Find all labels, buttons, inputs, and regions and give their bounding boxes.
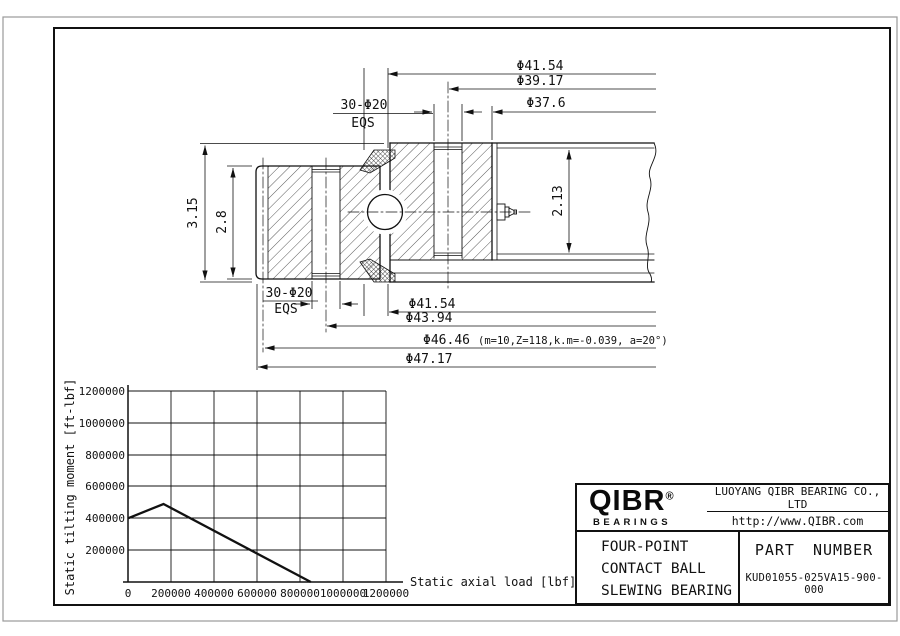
company-info: LUOYANG QIBR BEARING CO., LTD http://www… [707, 485, 888, 530]
y-tick: 200000 [85, 544, 125, 557]
title-block-detail-row: FOUR-POINT CONTACT BALL SLEWING BEARING … [577, 532, 888, 603]
x-axis-label: Static axial load [lbf] [410, 575, 576, 589]
company-website: http://www.QIBR.com [707, 512, 888, 530]
registered-trademark-icon: ® [666, 490, 675, 502]
bolt-callout-bottom: 30-Φ20 [266, 286, 313, 301]
inner-ring-section [390, 143, 654, 282]
dim-label-top-3: Φ37.6 [526, 96, 565, 111]
y-tick: 800000 [85, 449, 125, 462]
brand-subtext: BEARINGS [593, 517, 707, 528]
title-block: QIBR® BEARINGS LUOYANG QIBR BEARING CO.,… [575, 483, 890, 605]
dim-label-top-1: Φ41.54 [517, 59, 564, 74]
title-block-header-row: QIBR® BEARINGS LUOYANG QIBR BEARING CO.,… [577, 485, 888, 532]
qibr-logo: QIBR® BEARINGS [577, 485, 707, 530]
y-tick: 400000 [85, 512, 125, 525]
bolt-callout-top: 30-Φ20 [341, 98, 388, 113]
x-tick: 1200000 [363, 587, 409, 600]
break-line [646, 143, 656, 282]
product-type-line2: CONTACT BALL [601, 558, 738, 580]
x-tick: 800000 [280, 587, 320, 600]
dim-label-bot-1: Φ41.54 [409, 297, 456, 312]
dim-label-bot-3-note: (m=10,Z=118,k.m=-0.039, a=20°) [478, 335, 668, 347]
brand-wordmark: QIBR® [589, 487, 707, 516]
y-tick-labels: 1200000 1000000 800000 600000 400000 200… [79, 385, 125, 557]
dim-label-height-outer: 3.15 [186, 197, 201, 228]
x-tick: 400000 [194, 587, 234, 600]
part-number-label: PART NUMBER [740, 541, 888, 559]
x-tick-labels: 0 200000 400000 600000 800000 1000000 12… [125, 587, 409, 600]
dim-label-bot-4: Φ47.17 [406, 352, 453, 367]
company-name: LUOYANG QIBR BEARING CO., LTD [707, 485, 888, 512]
x-tick: 600000 [237, 587, 277, 600]
brand-text: QIBR [589, 485, 666, 517]
part-number-value: KUD01055-025VA15-900-000 [740, 572, 888, 596]
drawing-sheet: Φ41.54 Φ39.17 Φ37.6 30-Φ20 EQS 3.15 2.8 … [0, 0, 900, 636]
dim-label-top-2: Φ39.17 [517, 74, 564, 89]
y-axis-label: Static tilting moment [ft-lbf] [63, 379, 77, 596]
chart-line [128, 504, 311, 582]
y-tick: 1200000 [79, 385, 125, 398]
product-type: FOUR-POINT CONTACT BALL SLEWING BEARING [577, 532, 740, 603]
part-number-cell: PART NUMBER KUD01055-025VA15-900-000 [740, 532, 888, 603]
dim-label-bot-3: Φ46.46 [423, 333, 470, 348]
y-tick: 600000 [85, 480, 125, 493]
load-capacity-chart: 1200000 1000000 800000 600000 400000 200… [63, 379, 576, 600]
dim-label-bot-2: Φ43.94 [406, 311, 453, 326]
y-tick: 1000000 [79, 417, 125, 430]
bolt-callout-top-eqs: EQS [351, 116, 374, 131]
product-type-line3: SLEWING BEARING [601, 580, 738, 602]
x-tick: 200000 [151, 587, 191, 600]
product-type-line1: FOUR-POINT [601, 536, 738, 558]
dim-label-height-right: 2.13 [551, 185, 566, 216]
bearing-cross-section [256, 82, 656, 352]
bolt-callout-bottom-eqs: EQS [274, 302, 297, 317]
x-tick: 1000000 [320, 587, 366, 600]
x-tick: 0 [125, 587, 132, 600]
dim-label-height-inner: 2.8 [215, 210, 230, 233]
